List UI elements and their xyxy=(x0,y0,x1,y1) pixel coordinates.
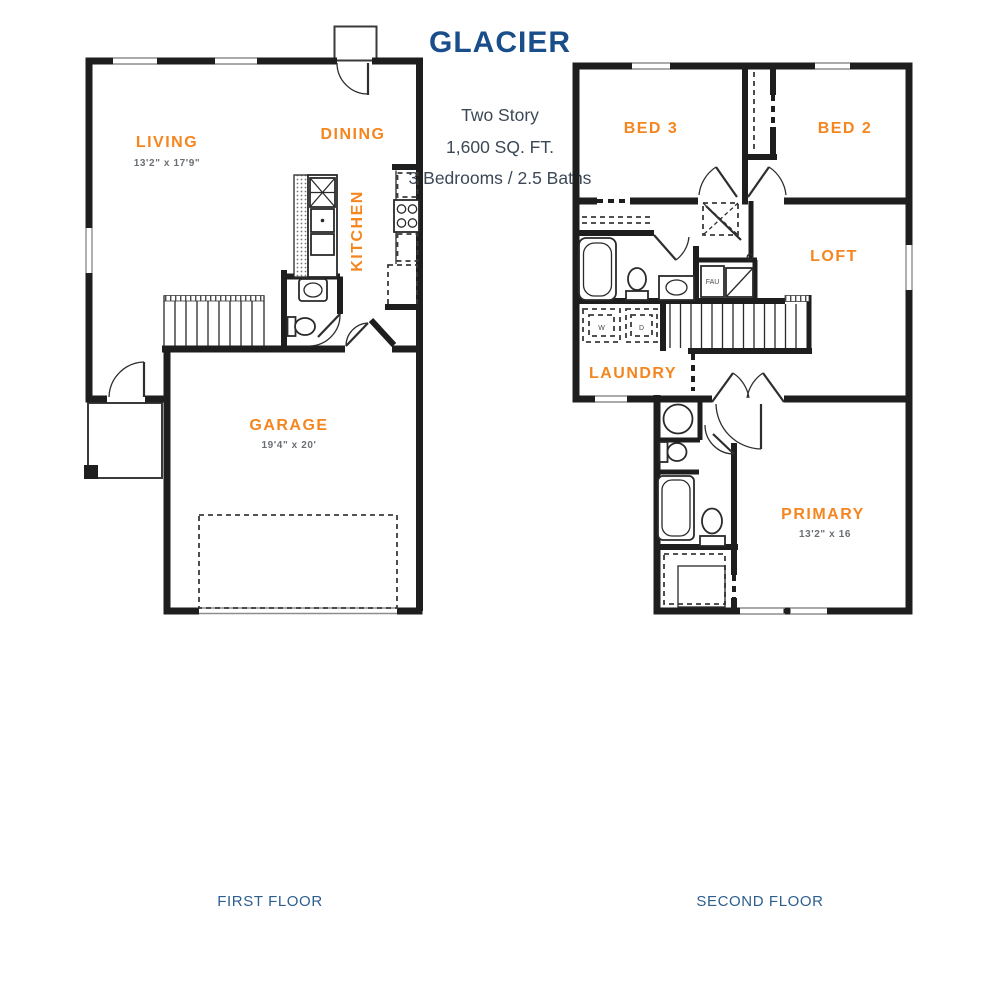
living-dims: 13'2" x 17'9" xyxy=(134,158,201,169)
bed3-closet xyxy=(576,217,654,233)
first-floor-caption: FIRST FLOOR xyxy=(160,893,380,910)
primary-sink xyxy=(702,509,722,534)
porch xyxy=(88,403,162,478)
washer-label: W xyxy=(598,325,605,332)
garage-dims: 19'4" x 20' xyxy=(261,440,316,451)
dining-label: DINING xyxy=(321,126,386,143)
second-floor-caption: SECOND FLOOR xyxy=(650,893,870,910)
living-side-door xyxy=(109,362,144,397)
living-label: LIVING xyxy=(136,134,198,151)
refrigerator xyxy=(398,173,418,197)
primary-walkin-closet xyxy=(664,547,734,615)
garage-door-clearance xyxy=(199,515,397,608)
water-heater xyxy=(657,403,700,441)
bed3-label: BED 3 xyxy=(624,120,679,137)
fau-label: FAU xyxy=(706,279,720,286)
linen-closet xyxy=(703,203,741,240)
primary-label: PRIMARY xyxy=(781,506,865,523)
first-floor-plan: LIVING 13'2" x 17'9" DINING KITCHEN GARA… xyxy=(84,27,423,615)
entry-stoop xyxy=(335,27,377,61)
garage-label: GARAGE xyxy=(249,417,328,434)
bed2-door xyxy=(748,167,786,197)
floorplan-canvas: LIVING 13'2" x 17'9" DINING KITCHEN GARA… xyxy=(0,0,1000,700)
powder-sink xyxy=(299,279,327,301)
range xyxy=(394,200,419,232)
front-door xyxy=(337,63,368,95)
laundry-label: LAUNDRY xyxy=(589,365,677,382)
kitchen-label: KITCHEN xyxy=(349,190,366,272)
powder-room xyxy=(284,270,340,349)
dryer-label: D xyxy=(639,325,644,332)
bed2-label: BED 2 xyxy=(818,120,873,137)
primary-bathroom xyxy=(657,425,738,547)
fau-closet: FAU xyxy=(696,201,757,301)
primary-dims: 13'2" x 16 xyxy=(799,529,851,540)
porch-post xyxy=(84,465,98,479)
kitchen-island xyxy=(294,175,337,277)
bed3-door xyxy=(699,167,737,197)
stairs-first-floor xyxy=(164,296,264,346)
loft-label: LOFT xyxy=(810,248,858,265)
hall-toilet xyxy=(628,268,646,290)
second-floor-plan: FAU W D xyxy=(573,63,913,615)
garage-entry-door xyxy=(346,320,394,346)
laundry-appliances: W D xyxy=(583,309,657,342)
primary-toilet xyxy=(660,442,668,462)
pantry xyxy=(388,265,417,305)
